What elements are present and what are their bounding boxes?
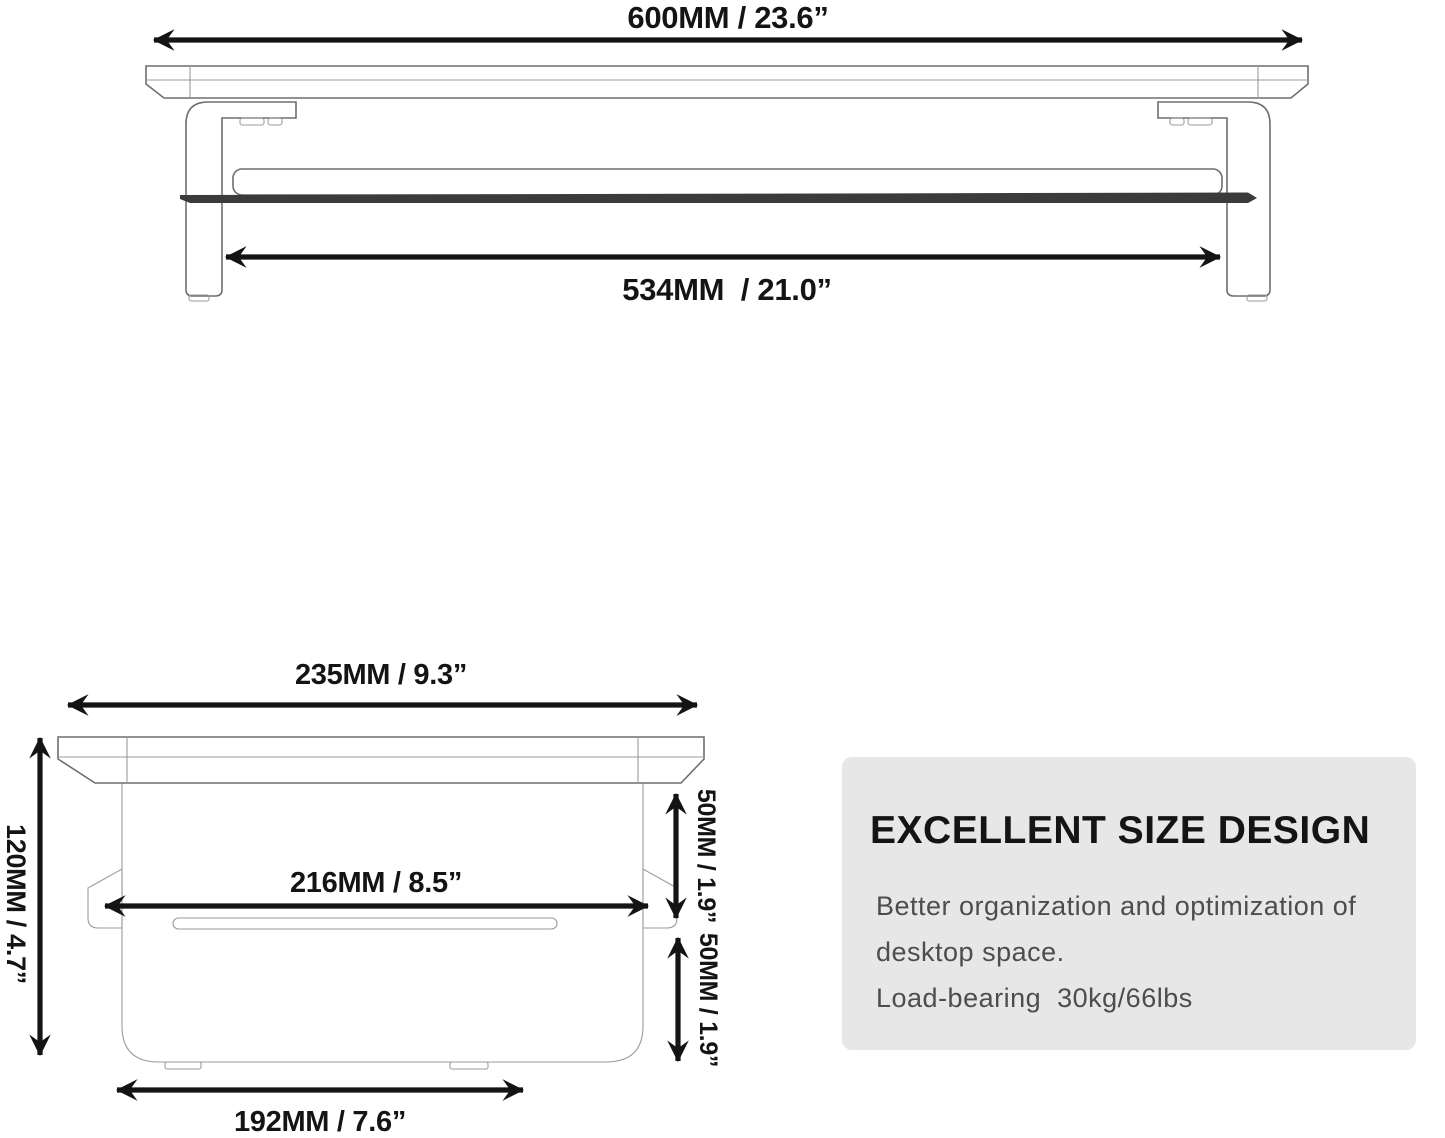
front-right-leg-tab: [1188, 118, 1212, 125]
dimension-label-50mm-lower: 50MM / 1.9”: [694, 933, 722, 1067]
side-foot: [450, 1062, 488, 1069]
side-right-bracket: [643, 869, 677, 928]
front-left-leg-tab: [268, 118, 282, 125]
info-box-line: desktop space.: [876, 929, 1390, 975]
side-top-platform: [58, 737, 704, 783]
dimension-label-235mm: 235MM / 9.3”: [295, 659, 467, 691]
front-shelf-dark-edge: [180, 193, 1257, 204]
side-leg-panel: [122, 783, 643, 1062]
dimension-label-216mm: 216MM / 8.5”: [290, 867, 462, 899]
dimension-label-50mm-upper: 50MM / 1.9”: [692, 789, 720, 923]
front-view: [146, 66, 1308, 301]
side-view: [58, 737, 704, 1069]
dimension-label-192mm: 192MM / 7.6”: [234, 1106, 406, 1138]
info-box-title: EXCELLENT SIZE DESIGN: [870, 809, 1390, 853]
dimension-label-600mm: 600MM / 23.6”: [627, 0, 828, 35]
side-left-bracket: [88, 869, 122, 928]
front-middle-shelf: [233, 169, 1222, 195]
info-box-line: Load-bearing 30kg/66lbs: [876, 975, 1390, 1021]
product-dimension-diagram: 600MM / 23.6” 534MM / 21.0” 235MM / 9.3”…: [0, 0, 1445, 1138]
info-box-line: Better organization and optimization of: [876, 883, 1390, 929]
info-box: EXCELLENT SIZE DESIGN Better organizatio…: [842, 757, 1416, 1050]
side-foot: [165, 1062, 201, 1069]
side-shelf-slot: [173, 918, 557, 929]
front-top-platform: [146, 66, 1308, 98]
front-left-leg-tab: [240, 118, 264, 125]
dimension-label-120mm: 120MM / 4.7”: [1, 824, 31, 984]
dimension-label-534mm: 534MM / 21.0”: [622, 272, 831, 307]
front-right-leg-tab: [1170, 118, 1184, 125]
info-box-body: Better organization and optimization of …: [876, 883, 1390, 1021]
